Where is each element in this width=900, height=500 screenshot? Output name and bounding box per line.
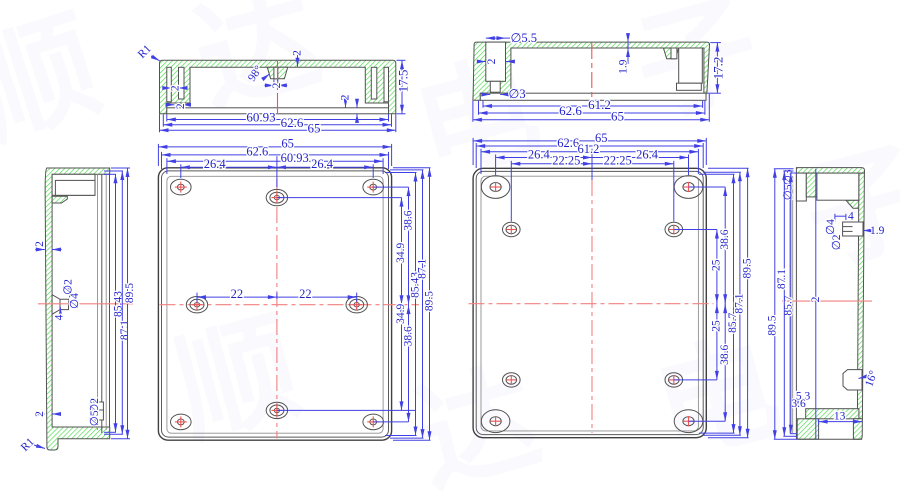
svg-text:26.4: 26.4 — [636, 147, 659, 161]
svg-text:子: 子 — [792, 128, 900, 288]
svg-text:13: 13 — [834, 410, 846, 422]
svg-text:2: 2 — [170, 85, 182, 91]
svg-text:∅5: ∅5 — [89, 410, 101, 426]
svg-text:2: 2 — [340, 94, 352, 100]
svg-text:26.4: 26.4 — [311, 157, 334, 171]
svg-text:25: 25 — [711, 320, 723, 332]
svg-text:22: 22 — [231, 287, 244, 301]
svg-text:25: 25 — [711, 259, 723, 271]
svg-text:65: 65 — [308, 120, 321, 135]
svg-text:62.6: 62.6 — [281, 115, 304, 130]
svg-text:2: 2 — [34, 411, 46, 417]
svg-text:1.9: 1.9 — [618, 59, 630, 74]
svg-text:2: 2 — [271, 82, 283, 88]
svg-text:3.6: 3.6 — [791, 398, 806, 410]
svg-text:60.93: 60.93 — [281, 151, 309, 165]
svg-text:∅4: ∅4 — [69, 293, 81, 309]
svg-text:22.25: 22.25 — [552, 154, 580, 168]
svg-text:4: 4 — [54, 314, 66, 320]
svg-text:∅4: ∅4 — [825, 219, 837, 235]
svg-text:34.9: 34.9 — [395, 303, 407, 323]
svg-text:38.6: 38.6 — [402, 326, 414, 346]
svg-text:R1: R1 — [19, 436, 37, 454]
svg-text:2: 2 — [34, 241, 46, 247]
svg-text:∅2: ∅2 — [63, 279, 75, 295]
svg-text:顺: 顺 — [0, 0, 114, 162]
svg-text:达: 达 — [402, 350, 552, 500]
svg-text:1.9: 1.9 — [870, 225, 885, 237]
svg-text:62.6: 62.6 — [559, 103, 582, 118]
svg-text:17.2: 17.2 — [711, 57, 726, 80]
svg-text:∅2: ∅2 — [831, 234, 843, 250]
svg-text:38.6: 38.6 — [719, 229, 731, 249]
svg-text:16°: 16° — [863, 369, 880, 389]
svg-text:顺: 顺 — [162, 300, 312, 460]
svg-text:26.4: 26.4 — [204, 157, 227, 171]
svg-text:87.1: 87.1 — [776, 269, 788, 289]
svg-text:60.93: 60.93 — [246, 110, 275, 125]
svg-text:87.1: 87.1 — [119, 320, 131, 340]
svg-text:17.5: 17.5 — [396, 70, 411, 93]
svg-text:34.9: 34.9 — [395, 242, 407, 262]
svg-text:∅5.5: ∅5.5 — [511, 31, 538, 45]
svg-text:87.1: 87.1 — [734, 293, 746, 313]
svg-text:∅3: ∅3 — [509, 87, 526, 101]
svg-text:65: 65 — [611, 108, 624, 123]
svg-text:22: 22 — [299, 287, 312, 301]
svg-text:89.5: 89.5 — [767, 315, 779, 335]
svg-text:85.7: 85.7 — [727, 312, 739, 332]
svg-text:62.6: 62.6 — [557, 136, 579, 150]
svg-text:2: 2 — [292, 50, 304, 56]
svg-text:62.6: 62.6 — [246, 145, 268, 159]
svg-text:89.5: 89.5 — [423, 291, 435, 311]
svg-text:22.25: 22.25 — [604, 154, 632, 168]
svg-text:89.5: 89.5 — [124, 283, 136, 303]
svg-text:89.5: 89.5 — [741, 258, 753, 278]
svg-text:87.1: 87.1 — [416, 258, 428, 278]
svg-text:38.6: 38.6 — [719, 344, 731, 364]
svg-text:38.6: 38.6 — [402, 210, 414, 230]
svg-text:2: 2 — [810, 296, 822, 302]
svg-text:61.2: 61.2 — [588, 97, 611, 112]
svg-text:2: 2 — [175, 103, 187, 109]
svg-text:61.2: 61.2 — [577, 142, 599, 156]
svg-text:26.4: 26.4 — [528, 147, 551, 161]
svg-text:4: 4 — [848, 211, 854, 223]
svg-text:2: 2 — [486, 58, 498, 64]
svg-text:R1: R1 — [136, 43, 154, 61]
svg-text:65: 65 — [281, 137, 294, 151]
